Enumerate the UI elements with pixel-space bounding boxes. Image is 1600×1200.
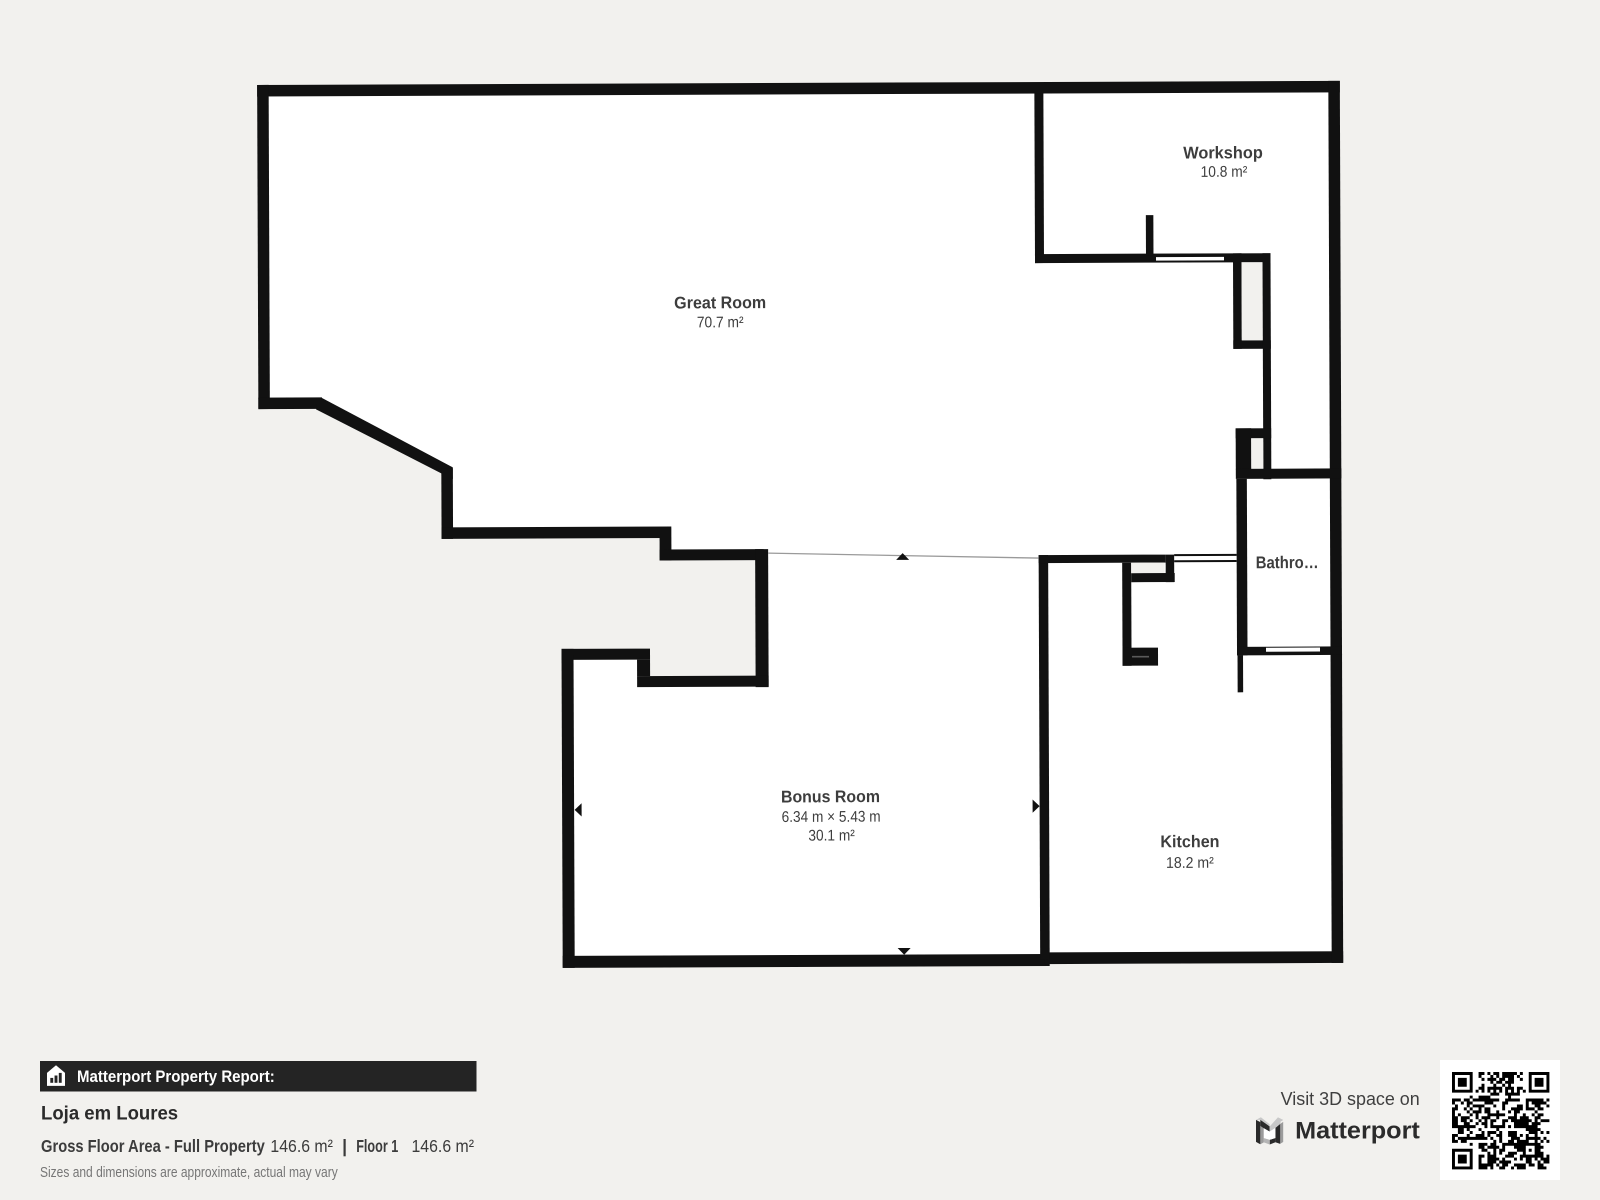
svg-text:Sizes and dimensions are appro: Sizes and dimensions are approximate, ac… [40,1164,338,1181]
svg-text:10.8 m²: 10.8 m² [1201,164,1248,181]
svg-text:Floor 1: Floor 1 [356,1136,398,1156]
svg-text:146.6 m²: 146.6 m² [270,1136,333,1156]
svg-text:Bathro…: Bathro… [1256,553,1319,572]
svg-text:30.1 m²: 30.1 m² [808,827,855,844]
svg-text:Matterport: Matterport [1295,1118,1420,1145]
svg-text:Matterport Property Report:: Matterport Property Report: [77,1067,275,1086]
svg-text:Kitchen: Kitchen [1160,832,1219,851]
svg-text:Visit 3D space on: Visit 3D space on [1281,1089,1420,1109]
svg-text:70.7 m²: 70.7 m² [697,314,744,331]
svg-text:6.34 m × 5.43 m: 6.34 m × 5.43 m [782,809,881,826]
svg-text:Loja em Loures: Loja em Loures [41,1103,178,1125]
svg-text:Bonus Room: Bonus Room [781,787,880,806]
svg-text:146.6 m²: 146.6 m² [412,1136,475,1156]
svg-text:18.2 m²: 18.2 m² [1166,855,1214,872]
svg-text:Workshop: Workshop [1183,143,1263,162]
svg-text:Great Room: Great Room [674,293,766,312]
svg-text:Gross Floor Area - Full Proper: Gross Floor Area - Full Property [41,1136,265,1156]
